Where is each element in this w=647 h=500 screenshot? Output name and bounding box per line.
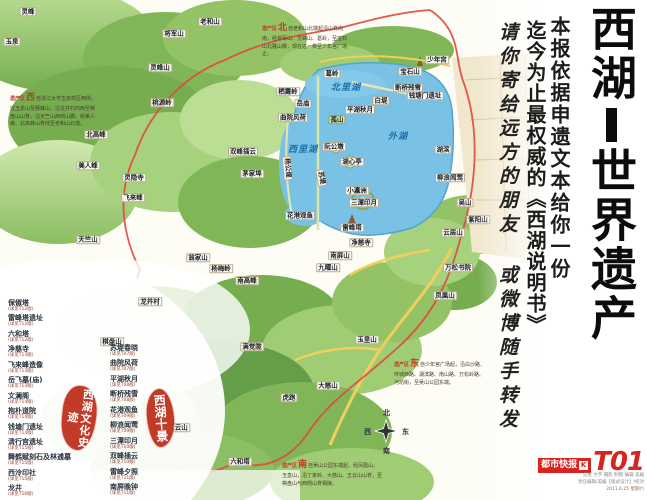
newspaper-page: 灵峰玉泉老和山将军山灵峰山桃源岭北高峰美人峰灵隐寺飞来峰天竺山龙井村棋盘山翁家山… bbox=[0, 0, 647, 500]
map-label: 湖滨 bbox=[435, 145, 452, 154]
map-label: 小瀛洲 bbox=[345, 186, 369, 195]
map-label: 柳浪闻莺 bbox=[435, 173, 465, 182]
list-item: 飞来峰造像(详见T13版) bbox=[8, 361, 108, 374]
map-label: 将军山 bbox=[162, 29, 186, 38]
map-label: 六和塔 bbox=[228, 457, 252, 466]
list-item-note: (详见T13版) bbox=[8, 353, 108, 358]
list-item: 西泠印社(详见T15版) bbox=[8, 469, 108, 482]
map-label: 茅家埠 bbox=[240, 169, 264, 178]
map-label: 宝石山 bbox=[398, 67, 422, 76]
list-item: 净慈寺(详见T13版) bbox=[8, 345, 108, 358]
list-item: 清行宫遗址(详见T15版) bbox=[8, 438, 108, 451]
note-prefix: 遗产区 bbox=[394, 362, 409, 368]
map-label: 桃源岭 bbox=[150, 98, 174, 107]
boundary-note-north: 遗产区北自老和山北端起沿山脊向南，经将军山、灵峰山、葛岭，至宝石山北麓山脚，现在… bbox=[262, 22, 348, 59]
headline-part2: 世界遗产 bbox=[584, 147, 638, 343]
note-direction: 南 bbox=[297, 460, 308, 470]
paper-name: 都市快报 bbox=[541, 458, 577, 473]
map-label: 飞来峰 bbox=[121, 193, 145, 202]
date-line: 2011.6.25 星期六 bbox=[538, 487, 644, 494]
map-label: 玉泉 bbox=[4, 37, 21, 46]
list-item-note: (详见T08版) bbox=[110, 383, 154, 388]
map-label: 三潭印月 bbox=[349, 198, 379, 207]
list-item-name: 保俶塔 bbox=[8, 299, 108, 307]
list-item-note: (详见T15版) bbox=[8, 477, 108, 482]
logo-mark-icon: K bbox=[579, 461, 588, 470]
list-item-name: 六和塔 bbox=[8, 330, 108, 338]
map-label: 净慈寺 bbox=[349, 238, 373, 247]
boundary-note-east: 遗产区东自少年宫广场起，沿白沙路、环城西路、湖滨路、南山路、万松岭路、河坊街，至… bbox=[394, 358, 486, 387]
list-item-note: (详见T16版) bbox=[8, 492, 108, 497]
credits-line-2: 责任编辑/美编【版式设计】/校对 bbox=[538, 480, 644, 487]
map-label: 西里湖 bbox=[287, 145, 319, 155]
map-label: 曲院风荷 bbox=[278, 113, 308, 122]
list-item: 平湖秋月(详见T08版) bbox=[110, 375, 154, 388]
intro-column-2: 迄今为止最权威的《西湖说明书》 bbox=[523, 20, 547, 335]
map-label: 满觉陇 bbox=[240, 342, 264, 351]
map-label: 北里湖 bbox=[330, 83, 362, 93]
list-item: 三潭印月(详见T10版) bbox=[110, 437, 154, 450]
map-label: 云居山 bbox=[441, 228, 465, 237]
map-label: 灵峰 bbox=[20, 7, 37, 16]
map-label: 阮公墩 bbox=[322, 142, 346, 151]
map-label: 外湖 bbox=[387, 132, 409, 142]
map-label: 岳庙 bbox=[295, 99, 312, 108]
note-direction: 西 bbox=[25, 93, 36, 103]
list-item-note: (详见T15版) bbox=[8, 461, 108, 466]
map-label: 灵隐寺 bbox=[122, 173, 146, 182]
credits-line-1: 记者 文字 摄影 制图 编辑 美编 bbox=[538, 473, 644, 480]
map-label: 美人峰 bbox=[76, 161, 100, 170]
map-label: 雷峰塔 bbox=[340, 223, 364, 232]
list-item-note: (详见T07版) bbox=[110, 367, 154, 372]
map-label: 苏堤 bbox=[315, 169, 328, 188]
map-label: 大慈山 bbox=[316, 381, 340, 390]
map-label: 双峰插云 bbox=[228, 147, 258, 156]
list-item-note: (详见T10版) bbox=[110, 445, 154, 450]
map-label: 龙井村 bbox=[138, 297, 162, 306]
list-item: 保俶塔(详见T12版) bbox=[8, 299, 108, 312]
list-item-note: (详见T12版) bbox=[8, 322, 108, 327]
map-label: 断桥残雪 bbox=[393, 83, 423, 92]
page-number: T01 bbox=[593, 451, 644, 473]
list-item: 龙井(详见T16版) bbox=[8, 484, 108, 497]
compass-rose: 北 东 南 西 bbox=[362, 408, 410, 454]
list-item: 六和塔(详见T12版) bbox=[8, 330, 108, 343]
note-direction: 东 bbox=[409, 359, 420, 369]
map-label: 虎跑 bbox=[281, 393, 298, 402]
list-item-note: (详见T11版) bbox=[110, 491, 154, 496]
headline-dash bbox=[606, 108, 617, 142]
note-direction: 北 bbox=[277, 23, 288, 33]
map-label: 翁家山 bbox=[186, 253, 210, 262]
boundary-note-west: 遗产区西自浙江大学玉泉校区西侧，过玉泉山至狮峰山，沿龙井村向西至棋盘山山脊，沿天… bbox=[10, 92, 98, 129]
compass-east-label: 东 bbox=[402, 427, 409, 437]
map-label: 玉皇山 bbox=[355, 335, 379, 344]
boundary-note-south: 遗产区南自吴山公园东端起，经凤凰山、玉皇山，沿丁家岭、大慈山、五云山山脊，至棋盘… bbox=[282, 459, 382, 488]
list-item-name: 南屏晚钟 bbox=[110, 483, 154, 491]
map-label: 天竺山 bbox=[76, 235, 100, 244]
map-label: 杨公堤 bbox=[281, 156, 292, 180]
list-item-note: (详见T13版) bbox=[8, 369, 108, 374]
map-label: 白堤 bbox=[373, 96, 390, 105]
map-label: 万松书院 bbox=[443, 263, 473, 272]
masthead: 都市快报 K T01 记者 文字 摄影 制图 编辑 美编 责任编辑/美编【版式设… bbox=[538, 451, 644, 493]
map-label: 孤山 bbox=[329, 115, 346, 124]
list-item-name: 清行宫遗址 bbox=[8, 438, 108, 446]
map-label: 北高峰 bbox=[84, 130, 108, 139]
list-item-name: 双峰插云 bbox=[110, 452, 154, 460]
list-item: 双峰插云(详见T10版) bbox=[110, 452, 154, 465]
note-prefix: 遗产区 bbox=[282, 463, 297, 469]
list-item: 苏堤春晓(详见T07版) bbox=[110, 344, 154, 357]
compass-west-label: 西 bbox=[364, 427, 371, 437]
note-prefix: 遗产区 bbox=[10, 96, 25, 102]
list-item-name: 平湖秋月 bbox=[110, 375, 154, 383]
newspaper-logo: 都市快报 K bbox=[538, 458, 591, 473]
note-prefix: 遗产区 bbox=[262, 26, 277, 32]
map-label: 吴山 bbox=[457, 198, 474, 207]
map-label: 葛岭 bbox=[324, 69, 341, 78]
list-item-note: (详见T12版) bbox=[8, 307, 108, 312]
intro-column-calligraphy: 请你寄给远方的朋友 或微博随手转发 bbox=[495, 22, 519, 433]
list-item-note: (详见T09版) bbox=[110, 429, 154, 434]
map-label: 湖心亭 bbox=[340, 157, 364, 166]
list-item-note: (详见T07版) bbox=[110, 352, 154, 357]
list-item-name: 苏堤春晓 bbox=[110, 344, 154, 352]
list-item: 雷峰夕照(详见T11版) bbox=[110, 468, 154, 481]
intro-column-1: 本报依据申遗文本给你一份 bbox=[547, 16, 571, 280]
list-item-name: 西泠印社 bbox=[8, 469, 108, 477]
map-label: 杨梅岭 bbox=[209, 264, 233, 273]
list-item-note: (详见T15版) bbox=[8, 446, 108, 451]
map-label: 钱塘门遗址 bbox=[407, 91, 444, 100]
list-item-name: 雷峰夕照 bbox=[110, 468, 154, 476]
list-item: 雷峰塔遗址(详见T12版) bbox=[8, 314, 108, 327]
list-item: 舞鹤赋刻石及林逋墓(详见T15版) bbox=[8, 453, 108, 466]
map-label: 凤凰山 bbox=[433, 291, 457, 300]
list-item-note: (详见T10版) bbox=[110, 460, 154, 465]
list-item-note: (详见T12版) bbox=[8, 338, 108, 343]
list-item: 曲院风荷(详见T07版) bbox=[110, 359, 154, 372]
list-item-note: (详见T11版) bbox=[110, 476, 154, 481]
compass-north-label: 北 bbox=[383, 408, 390, 418]
map-label: 九曜山 bbox=[316, 263, 340, 272]
map-label: 花港观鱼 bbox=[285, 211, 315, 220]
list-item-name: 三潭印月 bbox=[110, 437, 154, 445]
map-label: 平湖秋月 bbox=[345, 105, 375, 114]
page-headline: 西湖世界遗产 bbox=[576, 5, 646, 343]
compass-south-label: 南 bbox=[383, 446, 390, 456]
headline-part1: 西湖 bbox=[584, 5, 638, 103]
map-label: 老和山 bbox=[198, 17, 222, 26]
map-label: 南高峰 bbox=[235, 276, 259, 285]
map-label: 栖霞岭 bbox=[276, 87, 300, 96]
list-item: 南屏晚钟(详见T11版) bbox=[110, 483, 154, 496]
map-label: 南屏山 bbox=[328, 251, 352, 260]
list-item-name: 飞来峰造像 bbox=[8, 361, 108, 369]
map-label: 灵峰山 bbox=[148, 63, 172, 72]
map-label: 少年宫 bbox=[425, 55, 449, 64]
